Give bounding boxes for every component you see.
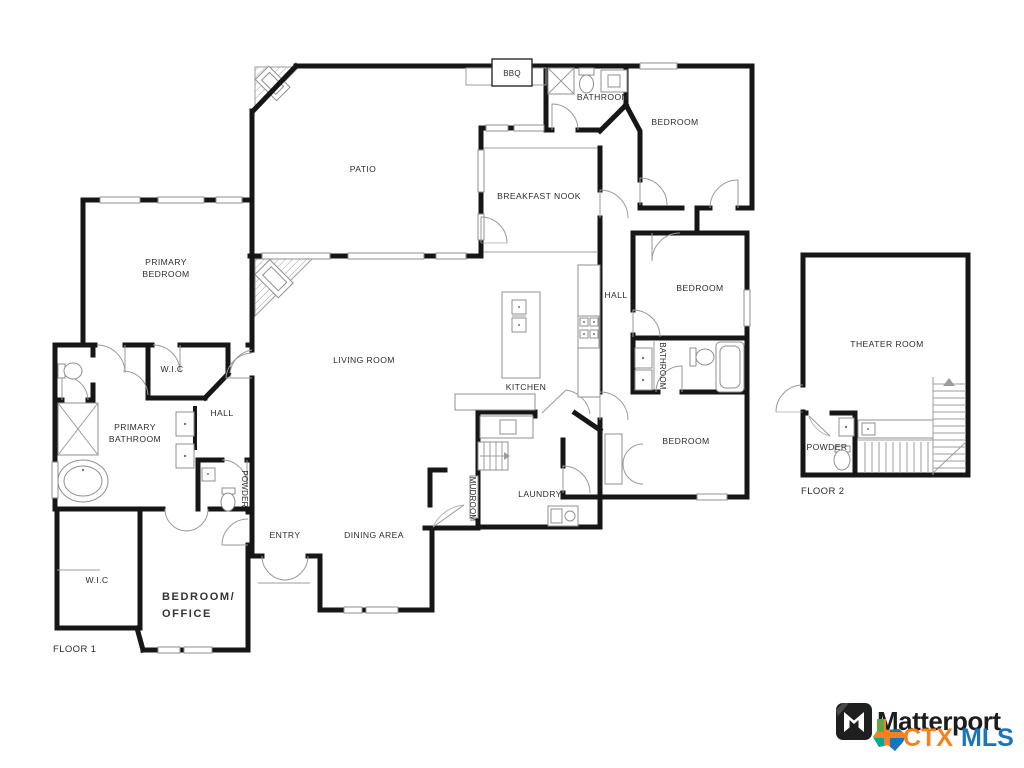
kitchen-counter-icon bbox=[578, 265, 600, 397]
mid-bathroom-fixtures bbox=[635, 340, 744, 392]
label-kitchen: KITCHEN bbox=[506, 382, 547, 392]
kitchen-lower-counter-icon bbox=[455, 394, 535, 438]
sink-icon bbox=[601, 70, 627, 92]
mls-wordmark: MLS bbox=[961, 724, 1014, 752]
label-patio: PATIO bbox=[350, 164, 377, 174]
primary-vanity-icon bbox=[176, 412, 194, 468]
primary-shower-icon bbox=[58, 403, 98, 455]
matterport-logo-icon bbox=[836, 703, 872, 740]
label-powder-left: POWDER bbox=[240, 470, 249, 507]
powder-left-fixtures bbox=[202, 468, 235, 511]
label-primary-bathroom-1: PRIMARY bbox=[114, 422, 156, 432]
label-primary-bedroom-2: BEDROOM bbox=[142, 269, 189, 279]
stairs-icon bbox=[478, 442, 510, 470]
branding: Matterport CTX MLS bbox=[836, 703, 1014, 754]
floor1-labels: PATIO BBQ BATHROOM BEDROOM BREAKFAST NOO… bbox=[53, 69, 724, 655]
label-hall-left: HALL bbox=[210, 408, 233, 418]
label-living-room: LIVING ROOM bbox=[333, 355, 395, 365]
floorplan-page: PATIO BBQ BATHROOM BEDROOM BREAKFAST NOO… bbox=[0, 0, 1024, 768]
label-wic-primary: W.I.C bbox=[160, 364, 183, 374]
washer-dryer-icon bbox=[548, 506, 578, 526]
label-hall-right: HALL bbox=[604, 290, 627, 300]
label-powder-floor2: POWDER bbox=[806, 442, 847, 452]
label-bathroom-top: BATHROOM bbox=[577, 92, 629, 102]
label-primary-bathroom-2: BATHROOM bbox=[109, 434, 161, 444]
theater-counter-icon bbox=[858, 420, 933, 438]
toilet-icon bbox=[579, 68, 594, 93]
label-laundry: LAUNDRY bbox=[518, 489, 562, 499]
label-bbq: BBQ bbox=[503, 69, 521, 78]
label-bedroom-office-2: OFFICE bbox=[162, 608, 212, 620]
label-wic-bottom: W.I.C bbox=[85, 575, 108, 585]
closet-icon bbox=[605, 434, 622, 484]
kitchen-island-icon bbox=[502, 292, 540, 378]
label-mudroom: MUDROOM bbox=[468, 477, 477, 522]
ctx-wordmark: CTX bbox=[903, 724, 953, 752]
label-breakfast-nook: BREAKFAST NOOK bbox=[497, 191, 581, 201]
shower-icon bbox=[548, 68, 574, 94]
floor1-plan: PATIO BBQ BATHROOM BEDROOM BREAKFAST NOO… bbox=[52, 59, 752, 655]
label-floor1: FLOOR 1 bbox=[53, 644, 96, 655]
label-entry: ENTRY bbox=[270, 530, 301, 540]
label-bedroom-office-1: BEDROOM/ bbox=[162, 591, 235, 603]
label-theater-room: THEATER ROOM bbox=[850, 339, 923, 349]
floor2-plan: THEATER ROOM POWDER FLOOR 2 bbox=[776, 255, 968, 497]
label-bedroom-mid-right: BEDROOM bbox=[676, 283, 723, 293]
label-primary-bedroom-1: PRIMARY bbox=[145, 257, 187, 267]
primary-tub-icon bbox=[58, 460, 108, 502]
label-bathroom-mid: BATHROOM bbox=[658, 342, 667, 389]
toilet-closet-icon bbox=[58, 363, 82, 379]
living-room-fireplace-icon bbox=[255, 259, 312, 316]
label-bedroom-bottom-right: BEDROOM bbox=[662, 436, 709, 446]
floorplan-drawing: PATIO BBQ BATHROOM BEDROOM BREAKFAST NOO… bbox=[0, 0, 1024, 768]
label-dining-area: DINING AREA bbox=[344, 530, 404, 540]
label-bedroom-top-right: BEDROOM bbox=[651, 117, 698, 127]
label-floor2: FLOOR 2 bbox=[801, 486, 844, 497]
